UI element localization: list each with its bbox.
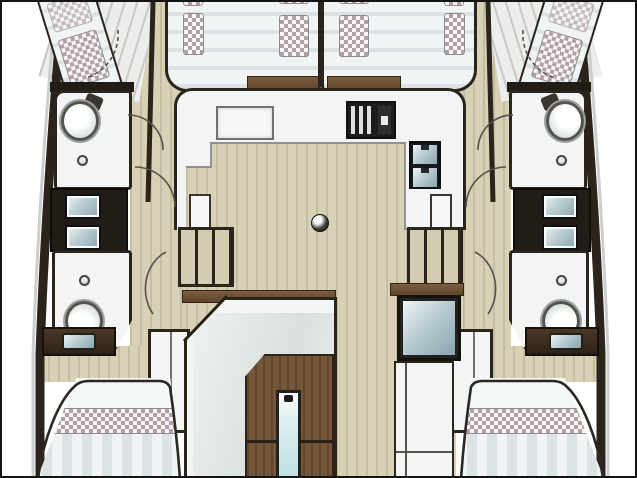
aft-cabin-bed-port <box>32 378 184 478</box>
stairs-starboard <box>407 227 463 287</box>
sink-basin-bottom <box>413 168 437 187</box>
desk-seat <box>62 333 96 350</box>
door-handle <box>284 395 293 402</box>
bed-pillow-band <box>457 408 609 434</box>
berth-pillow <box>183 0 203 6</box>
toilet-bowl <box>546 101 584 141</box>
galley-stove <box>346 101 396 139</box>
vanity-double-sink-starboard <box>513 188 591 252</box>
washbasin <box>65 194 101 219</box>
bathroom-forward-starboard <box>509 90 587 190</box>
berth-pillow <box>279 0 309 4</box>
berth-pillow <box>339 15 369 57</box>
forward-double-berth-starboard <box>321 0 477 92</box>
shower-drain <box>77 155 88 166</box>
galley-counter-return <box>186 142 212 168</box>
glazed-door-strip <box>276 390 301 478</box>
galley-sink-fridge <box>409 141 441 189</box>
stove-grates <box>351 106 375 134</box>
toilet <box>544 99 584 143</box>
shower-drain <box>556 275 567 286</box>
desk-seat <box>549 333 583 350</box>
vanity-desk-with-seat-starboard <box>525 327 599 356</box>
stairs-port <box>178 227 234 287</box>
berth-pillow <box>339 0 369 4</box>
toilet <box>61 99 101 143</box>
stairs-landing-port <box>189 194 211 229</box>
catamaran-floor-plan <box>0 0 637 478</box>
counter-hatch <box>216 106 274 140</box>
aft-locker-panel <box>394 361 454 478</box>
aft-skylight-window <box>397 295 461 361</box>
bathroom-forward-port <box>54 90 132 190</box>
forward-double-berth-port <box>165 0 321 92</box>
aft-cabin-bed-starboard <box>457 378 609 478</box>
washbasin <box>542 194 578 219</box>
berth-pillow <box>279 15 309 57</box>
berth-pillow <box>444 0 464 6</box>
washbasin <box>542 225 578 250</box>
vanity-desk-with-seat-port <box>42 327 116 356</box>
window-glass <box>403 301 455 355</box>
washbasin <box>65 225 101 250</box>
berth-pillow <box>183 13 204 55</box>
berth-pillow <box>444 13 465 55</box>
stove-control-panel <box>378 106 391 134</box>
toilet-bowl <box>61 101 99 141</box>
sink-basin-top <box>413 145 437 164</box>
stairs-landing-starboard <box>430 194 452 229</box>
bed-pillow-band <box>32 408 184 434</box>
shower-drain <box>556 155 567 166</box>
shower-drain <box>79 275 90 286</box>
vanity-double-sink-port <box>50 188 128 252</box>
floor-hatch-ring <box>311 214 329 232</box>
